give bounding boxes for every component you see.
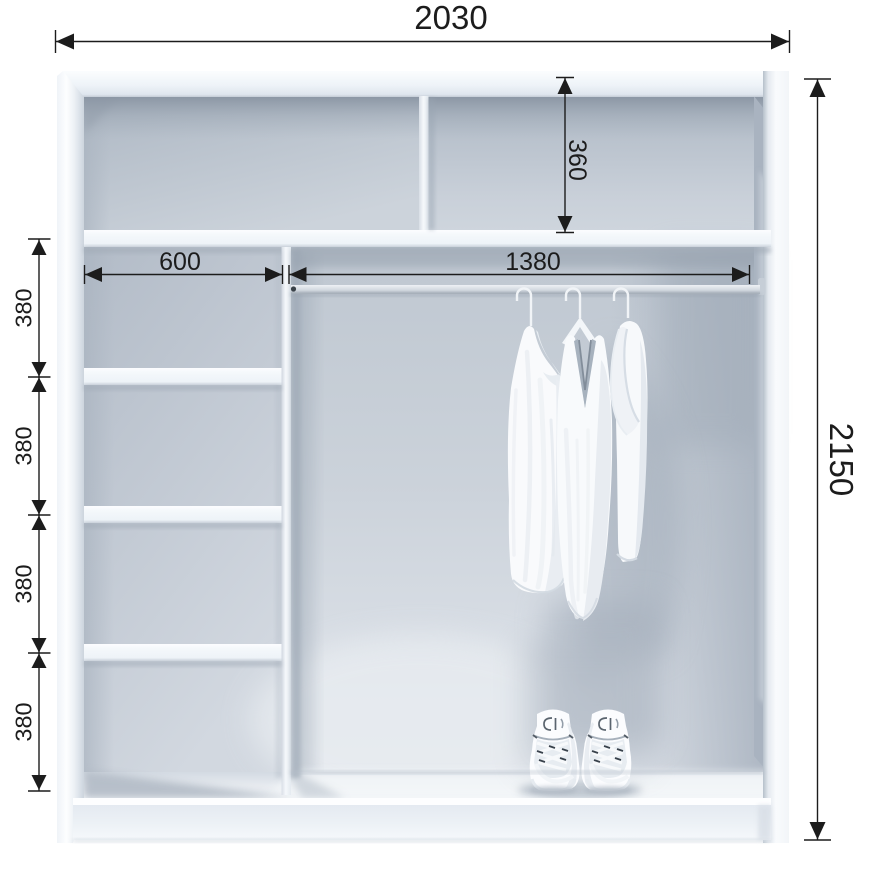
svg-text:380: 380	[11, 702, 37, 741]
svg-text:360: 360	[563, 139, 591, 181]
svg-text:380: 380	[11, 288, 37, 327]
svg-text:2030: 2030	[414, 0, 487, 36]
svg-text:380: 380	[11, 564, 37, 603]
svg-text:2150: 2150	[823, 423, 860, 496]
svg-text:380: 380	[11, 426, 37, 465]
svg-text:600: 600	[159, 248, 201, 276]
svg-text:1380: 1380	[505, 248, 561, 276]
